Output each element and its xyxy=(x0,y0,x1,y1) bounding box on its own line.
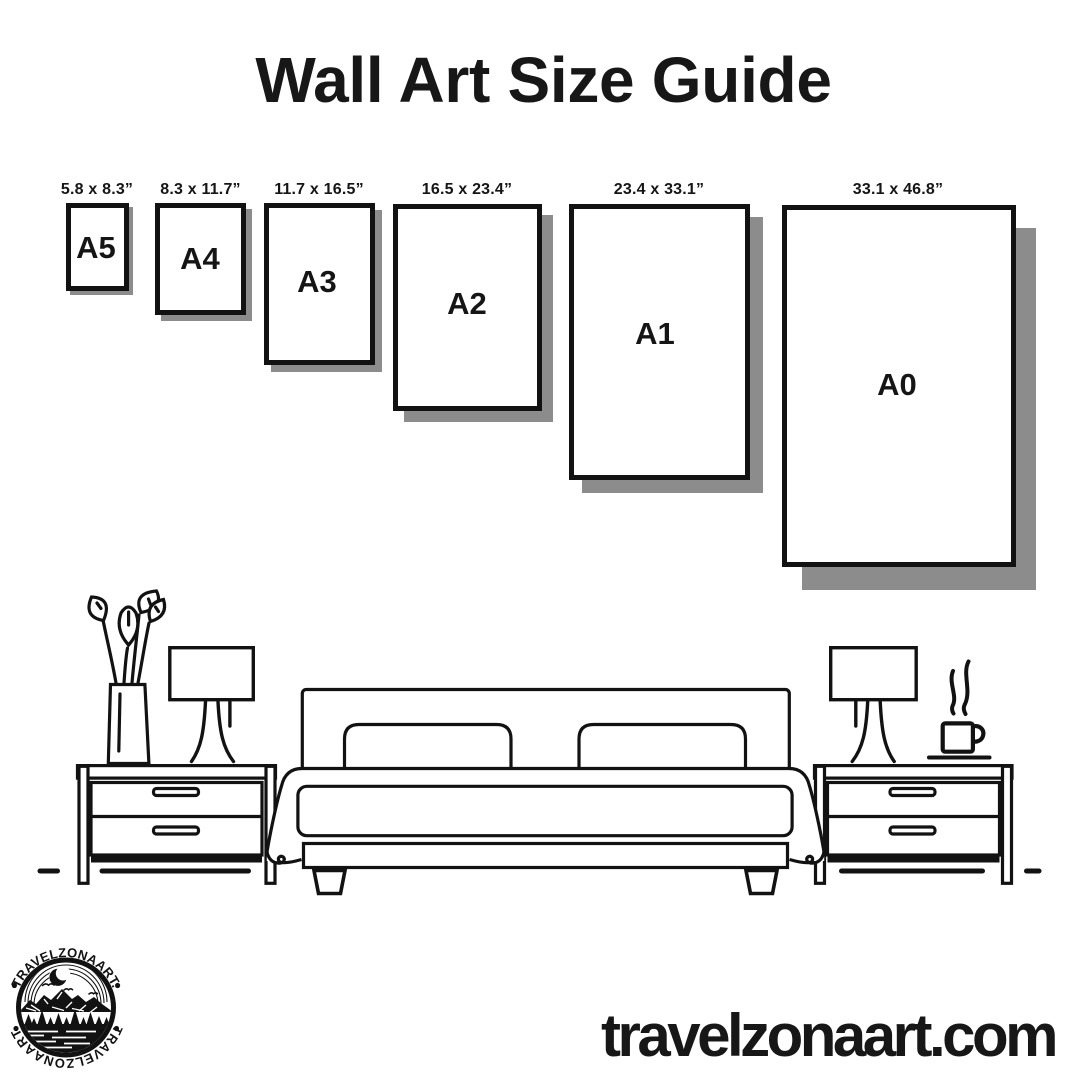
svg-text:TRAVELZONAART.: TRAVELZONAART. xyxy=(0,0,126,1071)
